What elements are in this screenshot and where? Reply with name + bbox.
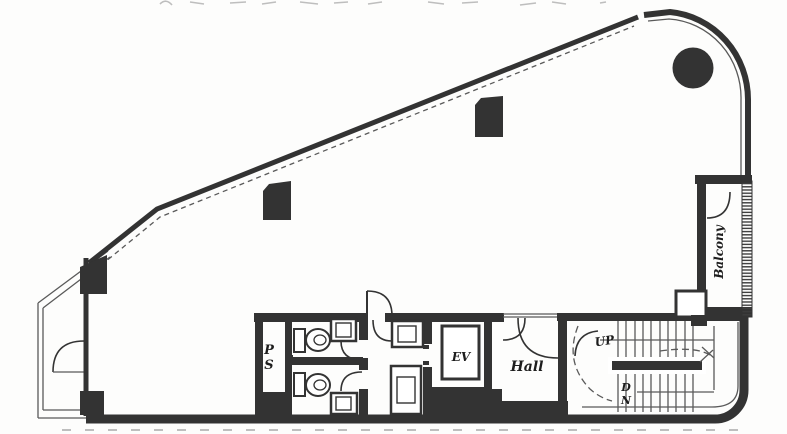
floor-plan-drawing: P S EV Hall	[0, 0, 787, 434]
diagonal-wall	[89, 17, 638, 263]
up-label: UP	[594, 333, 616, 350]
column-mid-right	[475, 96, 503, 137]
balcony-hatched-wall	[742, 181, 752, 317]
scan-artifact-top-text	[160, 1, 606, 5]
round-column	[673, 48, 714, 89]
veranda-door-arc	[53, 341, 84, 372]
toilet-tank-top	[294, 329, 305, 352]
top-right-curved-wall	[644, 12, 748, 180]
corridor	[367, 291, 423, 414]
hall-bottom-wall	[490, 401, 568, 423]
down-label-line1: D	[620, 381, 631, 394]
toilet-rooms	[294, 319, 362, 414]
elevator-label: EV	[451, 350, 472, 364]
corridor-door-arc-in	[373, 320, 392, 341]
ps-label-line1: P	[263, 343, 275, 358]
toilet-door-arc-bottom	[341, 372, 362, 391]
toilet-tank-bottom	[294, 373, 305, 396]
hall-label: Hall	[510, 359, 544, 375]
balcony-duct-box	[676, 291, 706, 317]
ps-label-line2: S	[264, 358, 273, 373]
stairwell: UP D N	[573, 321, 714, 412]
column-mid-left	[263, 181, 291, 220]
handrail	[612, 361, 702, 370]
column-left-wall-bottom	[80, 391, 104, 415]
pipe-shaft: P S	[263, 343, 275, 373]
balcony-label: Balcony	[712, 224, 726, 280]
hall: Hall	[503, 314, 558, 375]
floor-plan-page: P S EV Hall	[0, 0, 787, 434]
balcony: Balcony	[676, 175, 752, 326]
balcony-door-arc	[707, 192, 730, 218]
walkline-arrowhead	[700, 347, 714, 362]
down-label-line2: N	[620, 394, 632, 407]
corridor-door-arc-up	[367, 291, 392, 316]
